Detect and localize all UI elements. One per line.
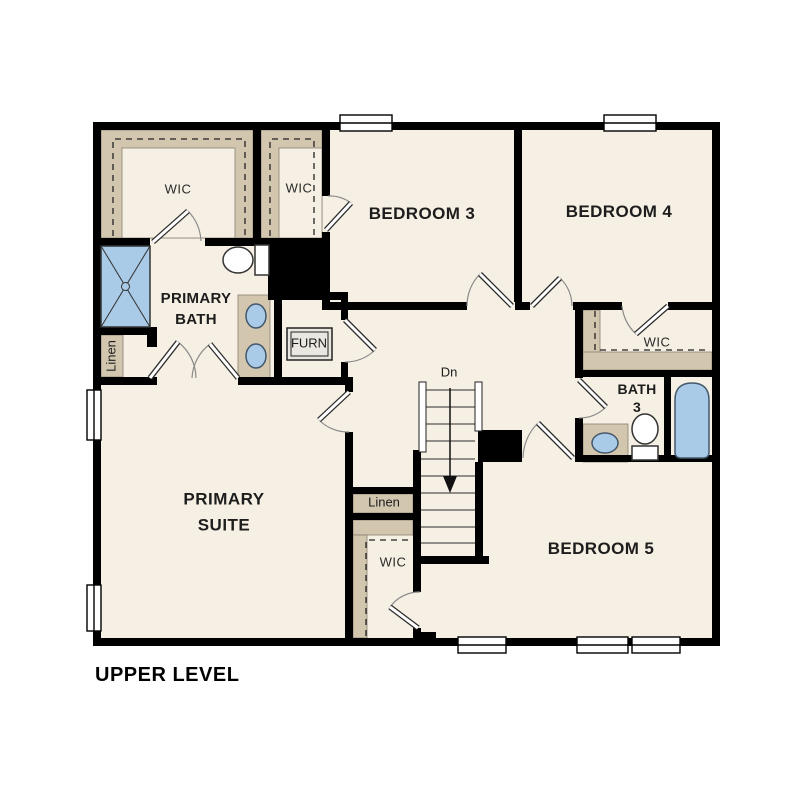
window-bedroom5-1	[458, 637, 506, 653]
primary-bath-label-line1: PRIMARY	[161, 288, 232, 309]
toilet-primary-bath	[223, 245, 269, 275]
primary-bath-label: PRIMARY BATH	[161, 288, 232, 330]
bath3-label: BATH 3	[617, 380, 656, 416]
primary-suite-label-line1: PRIMARY	[183, 487, 264, 513]
furnace-label: FURN	[291, 337, 327, 352]
bathtub-bath3	[675, 383, 709, 458]
shower-fixture	[101, 246, 150, 327]
window-bedroom5-2	[577, 637, 628, 653]
bedroom3-label: BEDROOM 3	[369, 204, 476, 224]
wic-bedroom4-label: WIC	[644, 336, 671, 351]
toilet-bath3	[632, 414, 658, 460]
floor-plan-drawing	[0, 0, 810, 810]
stairs-dn-label: Dn	[441, 366, 458, 381]
bedroom5-label: BEDROOM 5	[548, 539, 655, 559]
floor-plan: WIC WIC BEDROOM 3 BEDROOM 4 WIC PRIMARY …	[0, 0, 810, 810]
window-primary-suite-1	[87, 390, 101, 440]
linen-bath-label: Linen	[105, 340, 120, 372]
primary-bath-label-line2: BATH	[161, 309, 232, 330]
window-primary-suite-2	[87, 585, 101, 631]
sink-bath3	[592, 433, 618, 453]
plan-title: UPPER LEVEL	[95, 664, 239, 687]
primary-suite-label-line2: SUITE	[183, 512, 264, 538]
bath3-label-line2: 3	[617, 398, 656, 416]
window-bedroom5-3	[632, 637, 680, 653]
wic-bedroom3-label: WIC	[286, 182, 313, 197]
window-bedroom4	[604, 115, 656, 131]
bedroom4-label: BEDROOM 4	[566, 202, 673, 222]
window-bedroom3	[340, 115, 392, 131]
primary-suite-label: PRIMARY SUITE	[183, 487, 264, 538]
linen-hall-label: Linen	[368, 496, 400, 511]
wic-primary-label: WIC	[165, 183, 192, 198]
bath3-label-line1: BATH	[617, 380, 656, 398]
wic-bedroom5-label: WIC	[380, 556, 407, 571]
